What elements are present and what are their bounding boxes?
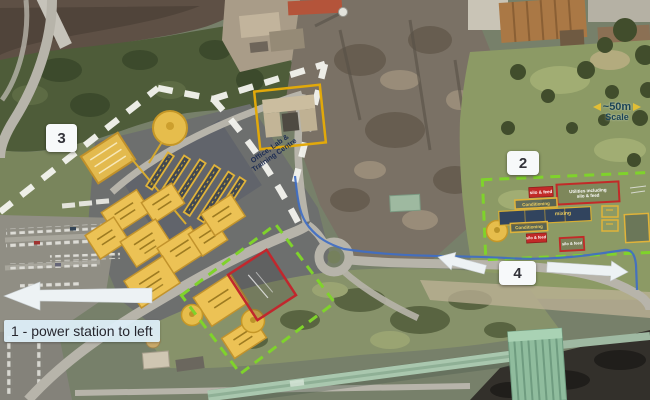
annotated-aerial-site-plan: 3 2 4 1 - power station to left ~50m Sca…	[0, 0, 650, 400]
far-right-yellow-box	[624, 213, 649, 242]
marker-4: 4	[499, 261, 536, 285]
power-station-note-text: 1 - power station to left	[11, 323, 153, 339]
marker-2: 2	[507, 151, 539, 175]
chimney	[339, 8, 348, 17]
marker-4-text: 4	[513, 265, 521, 282]
conveyor-building	[508, 328, 567, 400]
marker-3: 3	[46, 124, 77, 152]
scale-caption: Scale	[605, 112, 629, 122]
scale-arrow-left-icon	[593, 103, 601, 111]
scale-marker: ~50m Scale	[584, 101, 650, 122]
marker-3-text: 3	[57, 130, 65, 147]
scale-arrow-right-icon	[633, 103, 641, 111]
marker-2-text: 2	[519, 155, 527, 172]
power-station-note: 1 - power station to left	[4, 320, 160, 342]
